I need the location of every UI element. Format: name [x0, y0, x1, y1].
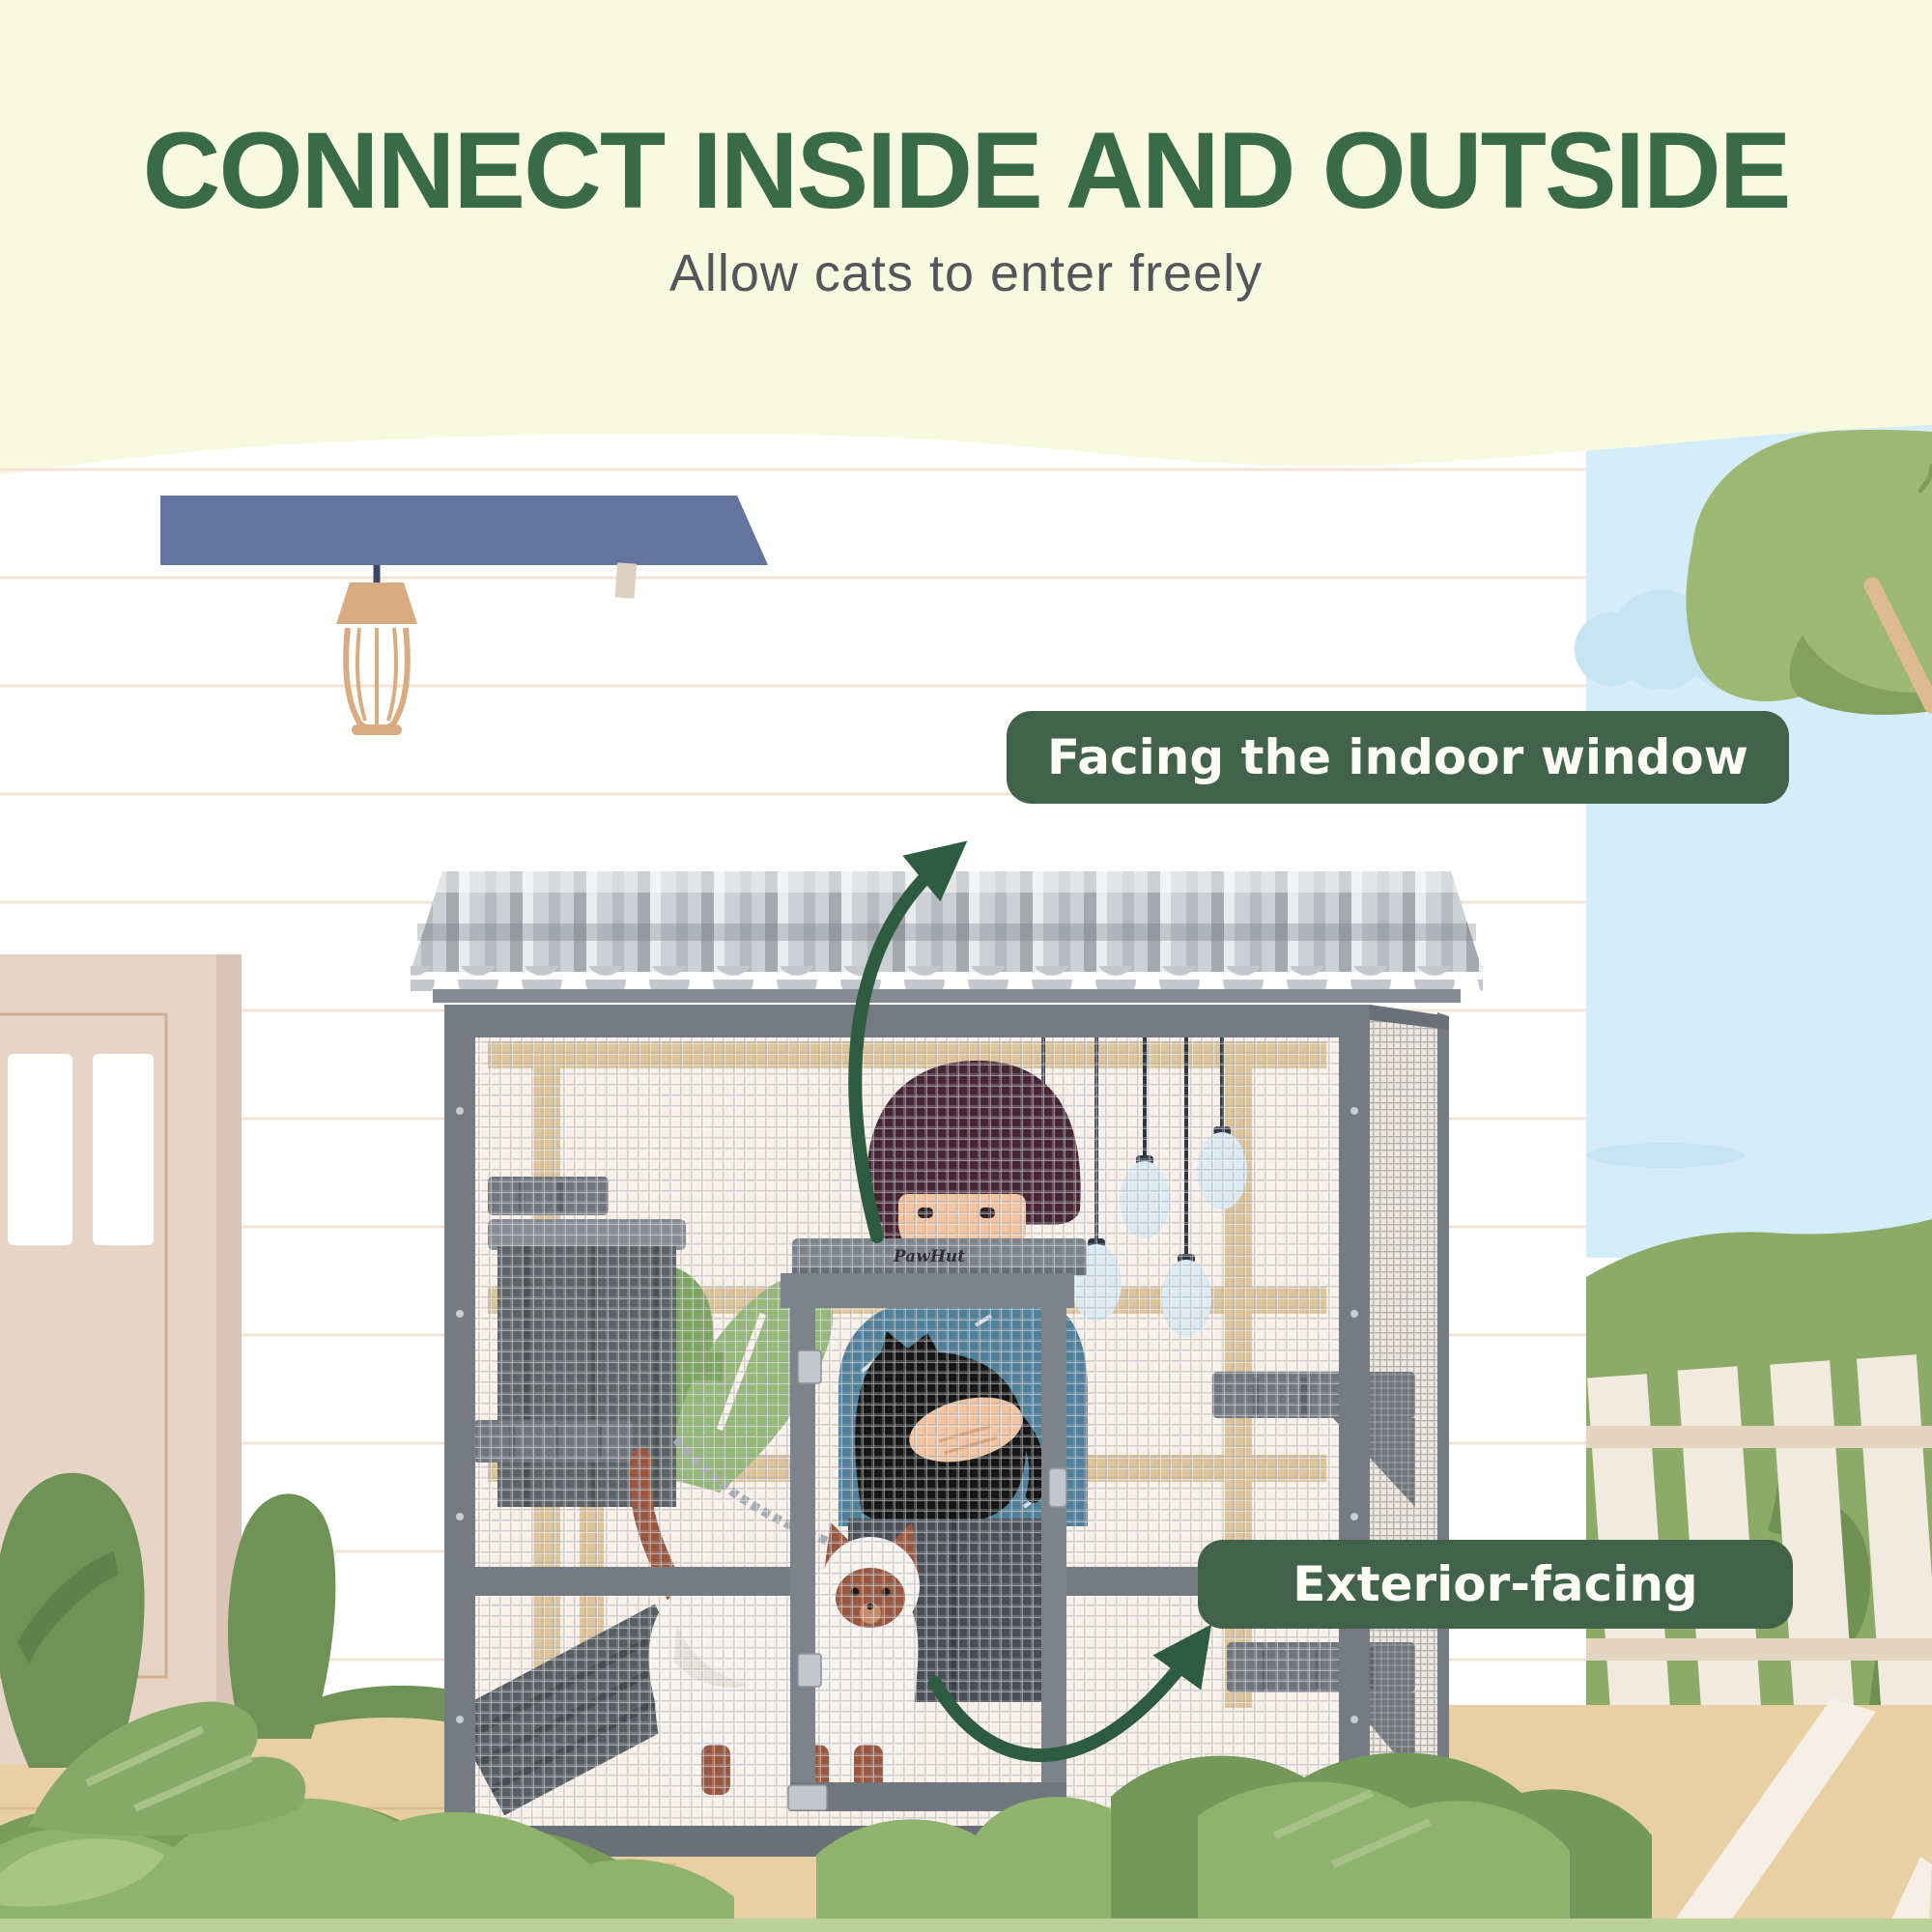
sky-column — [1575, 359, 1932, 1258]
page-subtitle: Allow cats to enter freely — [0, 243, 1932, 303]
fence-rail-top — [1586, 1426, 1932, 1448]
callout-exterior-facing: Exterior-facing — [1198, 1540, 1793, 1629]
callout-indoor-window: Facing the indoor window — [1007, 711, 1789, 804]
page-title: CONNECT INSIDE AND OUTSIDE — [0, 108, 1932, 233]
fence-rail-bottom — [1586, 1638, 1932, 1661]
door-window — [8, 1054, 72, 1245]
front-mesh — [475, 1036, 1339, 1829]
marketing-graphic: CONNECT INSIDE AND OUTSIDE Allow cats to… — [0, 0, 1932, 1932]
door-window — [93, 1054, 154, 1245]
catio — [411, 871, 1483, 1864]
top-band — [0, 0, 1932, 475]
callout-exterior-label: Exterior-facing — [1293, 1556, 1697, 1612]
brand-logo: PawHut — [871, 1242, 987, 1271]
callout-indoor-label: Facing the indoor window — [1047, 729, 1748, 785]
door-latch-icon — [1049, 1468, 1066, 1507]
corrugated-roof — [411, 871, 1483, 1003]
side-mesh — [1370, 1005, 1449, 1864]
